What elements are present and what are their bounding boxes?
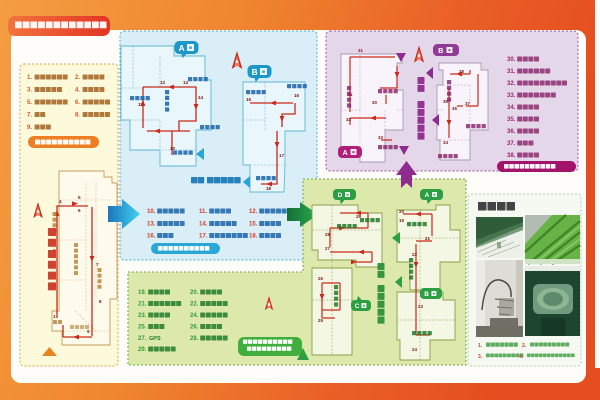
svg-text:4.: 4. [75, 88, 80, 94]
svg-text:27.: 27. [138, 336, 147, 342]
svg-text:B: B [424, 291, 429, 298]
svg-text:16.: 16. [147, 234, 156, 240]
svg-text:B: B [252, 67, 258, 77]
svg-text:31.: 31. [507, 69, 516, 75]
svg-text:20.: 20. [190, 290, 199, 296]
svg-text:2.: 2. [522, 343, 527, 349]
svg-text:4.: 4. [519, 354, 524, 360]
svg-text:36.: 36. [507, 129, 516, 135]
svg-text:18.: 18. [249, 234, 258, 240]
svg-text:C: C [355, 303, 360, 310]
svg-text:32.: 32. [507, 81, 516, 87]
svg-text:38: 38 [459, 69, 464, 74]
svg-text:11: 11 [138, 102, 143, 107]
svg-text:8.: 8. [75, 113, 80, 119]
svg-text:25.: 25. [138, 325, 147, 331]
svg-text:15: 15 [246, 97, 252, 102]
svg-text:19.: 19. [138, 290, 147, 296]
svg-text:33: 33 [378, 135, 383, 140]
svg-text:37.: 37. [507, 141, 516, 147]
svg-text:29.: 29. [138, 347, 147, 353]
svg-text:36: 36 [452, 106, 457, 111]
svg-text:B: B [438, 46, 443, 55]
svg-text:20: 20 [399, 209, 404, 214]
svg-text:10.: 10. [147, 209, 156, 215]
svg-text:37: 37 [465, 101, 470, 106]
svg-text:34.: 34. [507, 105, 516, 111]
svg-text:34: 34 [443, 140, 448, 145]
svg-text:D: D [338, 192, 343, 199]
svg-text:22: 22 [412, 252, 417, 257]
svg-text:22.: 22. [190, 302, 199, 308]
svg-text:24.: 24. [190, 313, 199, 319]
svg-text:38.: 38. [507, 153, 516, 159]
svg-text:1: 1 [53, 314, 56, 319]
svg-text:14: 14 [198, 95, 204, 100]
svg-text:A: A [343, 148, 349, 157]
svg-text:3.: 3. [27, 88, 32, 94]
svg-text:15.: 15. [249, 222, 258, 228]
svg-text:32: 32 [346, 117, 351, 122]
svg-text:28.: 28. [190, 336, 199, 342]
svg-text:12: 12 [160, 80, 166, 85]
svg-text:30: 30 [372, 100, 377, 105]
svg-text:26.: 26. [190, 325, 199, 331]
svg-text:GPS: GPS [149, 336, 161, 342]
svg-text:19: 19 [399, 218, 404, 223]
svg-text:13: 13 [183, 80, 189, 85]
svg-text:35.: 35. [507, 117, 516, 123]
svg-text:31: 31 [358, 48, 363, 53]
svg-text:23.: 23. [138, 313, 147, 319]
svg-text:9: 9 [87, 329, 90, 334]
svg-text:17.: 17. [199, 234, 208, 240]
svg-text:18: 18 [266, 186, 272, 191]
svg-text:23: 23 [418, 304, 423, 309]
svg-text:12.: 12. [249, 209, 258, 215]
svg-text:21: 21 [425, 236, 430, 241]
svg-text:A: A [179, 43, 185, 53]
svg-text:10: 10 [170, 146, 176, 151]
svg-text:28: 28 [325, 232, 330, 237]
svg-text:11.: 11. [199, 209, 207, 215]
svg-text:17: 17 [279, 153, 285, 158]
svg-text:16: 16 [294, 93, 300, 98]
svg-text:3.: 3. [478, 354, 483, 360]
svg-text:33.: 33. [507, 93, 516, 99]
svg-text:6: 6 [78, 208, 81, 213]
svg-text:2.: 2. [75, 75, 80, 81]
svg-text:5: 5 [78, 195, 81, 200]
svg-text:4: 4 [59, 199, 62, 204]
svg-text:1.: 1. [478, 343, 483, 349]
svg-text:A: A [425, 192, 430, 199]
svg-text:25: 25 [318, 318, 323, 323]
svg-text:14.: 14. [199, 222, 208, 228]
svg-text:21.: 21. [138, 302, 147, 308]
svg-text:8: 8 [99, 299, 102, 304]
svg-text:24: 24 [412, 347, 417, 352]
svg-text:13.: 13. [147, 222, 156, 228]
svg-text:7: 7 [96, 262, 99, 267]
svg-text:26: 26 [318, 276, 323, 281]
svg-text:30.: 30. [507, 57, 516, 63]
svg-text:9.: 9. [27, 125, 32, 131]
svg-text:27: 27 [325, 246, 330, 251]
svg-text:6.: 6. [75, 100, 80, 106]
svg-text:7.: 7. [27, 113, 32, 119]
svg-text:1.: 1. [27, 75, 32, 81]
svg-text:5.: 5. [27, 100, 32, 106]
